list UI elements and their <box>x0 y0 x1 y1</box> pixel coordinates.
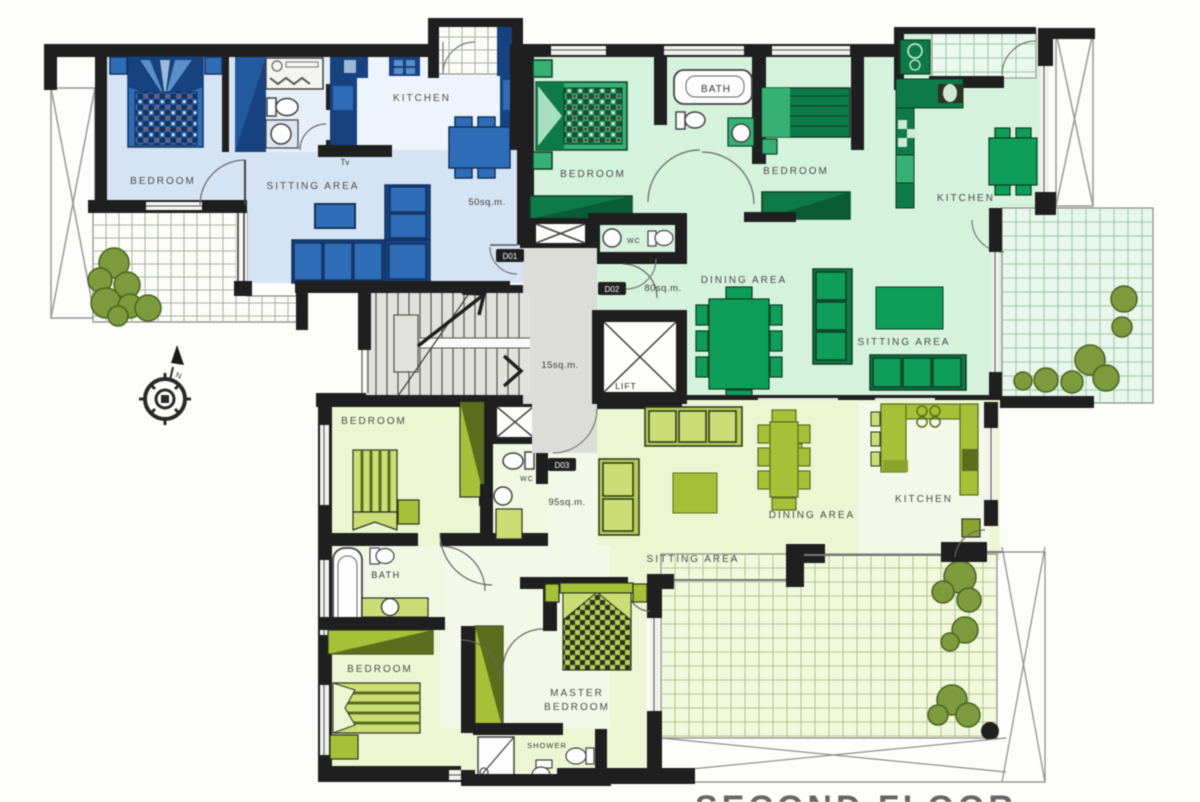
svg-text:95sq.m.: 95sq.m. <box>548 497 585 508</box>
svg-text:D01: D01 <box>503 252 518 261</box>
svg-text:WC: WC <box>627 238 641 245</box>
svg-text:Tv: Tv <box>341 158 350 167</box>
svg-text:D03: D03 <box>555 461 570 470</box>
svg-text:DINING AREA: DINING AREA <box>769 510 855 521</box>
svg-text:KITCHEN: KITCHEN <box>393 93 451 104</box>
svg-text:KITCHEN: KITCHEN <box>937 193 995 204</box>
svg-text:80sq.m.: 80sq.m. <box>644 283 681 294</box>
svg-text:WC: WC <box>520 476 534 483</box>
svg-text:BATH: BATH <box>371 570 400 580</box>
svg-text:MASTER: MASTER <box>550 688 604 699</box>
svg-text:SITTING AREA: SITTING AREA <box>267 181 360 192</box>
svg-text:D02: D02 <box>605 285 620 294</box>
svg-text:KITCHEN: KITCHEN <box>895 494 953 505</box>
svg-text:BATH: BATH <box>701 84 731 95</box>
svg-text:SITTING AREA: SITTING AREA <box>858 337 951 348</box>
svg-text:BEDROOM: BEDROOM <box>763 166 829 177</box>
svg-text:BEDROOM: BEDROOM <box>341 416 407 427</box>
svg-text:DINING AREA: DINING AREA <box>701 275 787 286</box>
svg-text:BEDROOM: BEDROOM <box>544 702 610 713</box>
svg-text:SECOND FLOOR: SECOND FLOOR <box>695 789 1017 802</box>
svg-text:50sq.m.: 50sq.m. <box>468 197 505 208</box>
svg-text:LIFT: LIFT <box>615 381 636 391</box>
svg-text:SITTING AREA: SITTING AREA <box>647 554 740 565</box>
svg-text:SHOWER: SHOWER <box>527 741 567 750</box>
svg-text:BEDROOM: BEDROOM <box>347 664 413 675</box>
svg-text:BEDROOM: BEDROOM <box>130 176 196 187</box>
svg-text:BEDROOM: BEDROOM <box>560 169 626 180</box>
svg-text:15sq.m.: 15sq.m. <box>541 360 578 371</box>
